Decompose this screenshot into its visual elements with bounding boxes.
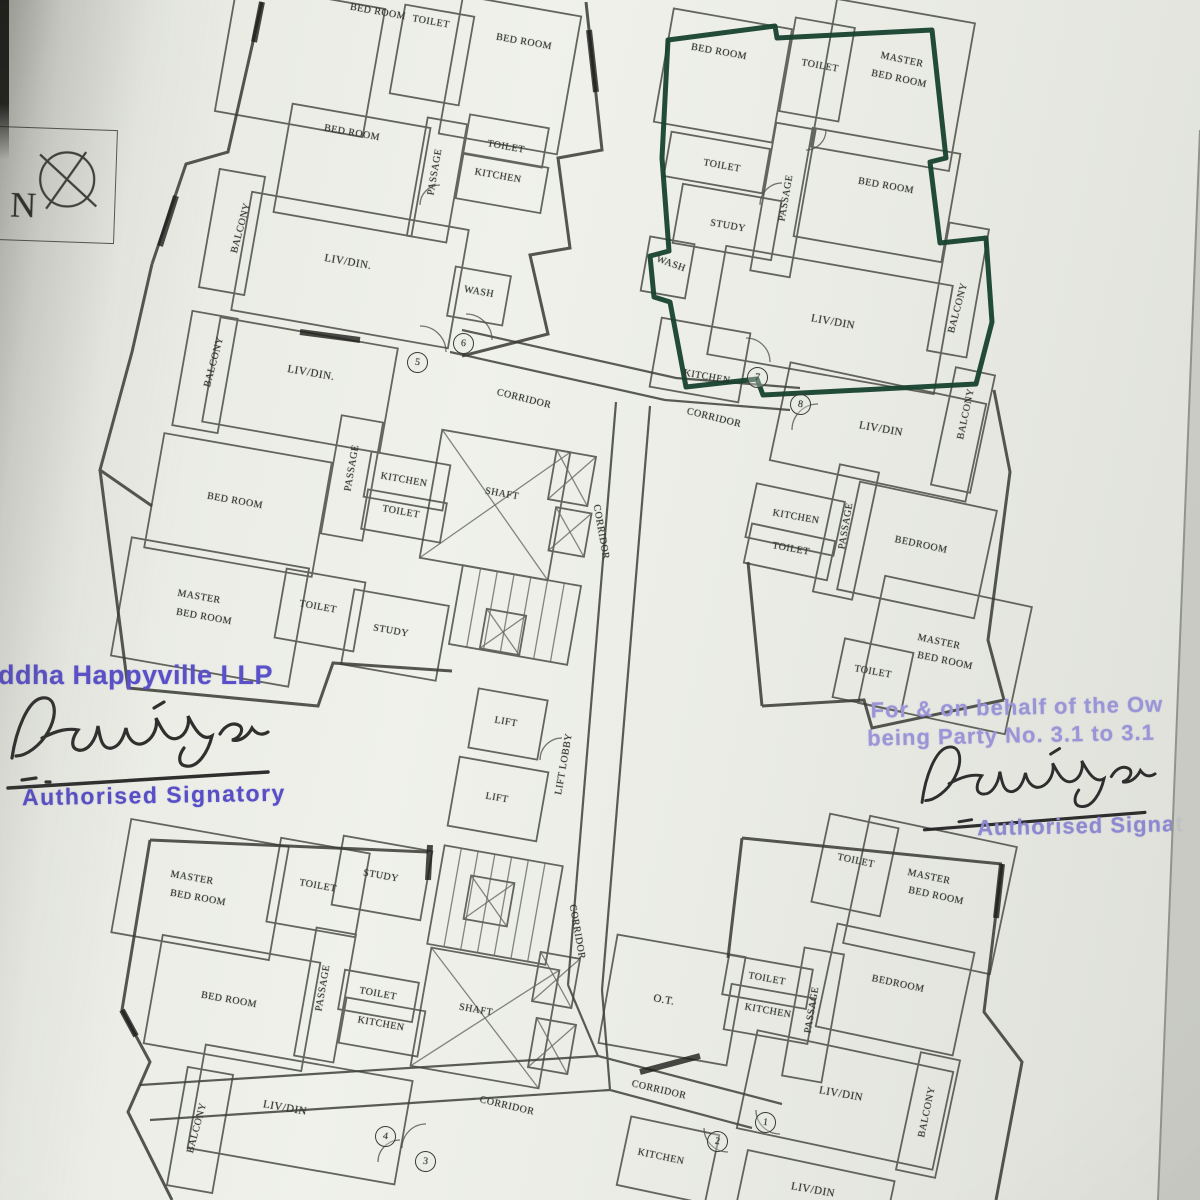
north-label: N — [10, 183, 37, 226]
highlighted-unit-outline — [650, 26, 992, 395]
page-left-edge — [0, 0, 9, 160]
stamp-right-line1: For & on behalf of the Ow — [870, 691, 1163, 723]
unit-top-left-walls — [199, 0, 581, 348]
stamp-left-title: Authorised Signatory — [22, 780, 286, 812]
stamp-right: For & on behalf of the Ow being Party No… — [862, 690, 1200, 858]
stamp-left: ddha Happyville LLP Authorised Signatory — [0, 660, 336, 820]
stamp-left-company: ddha Happyville LLP — [0, 660, 273, 691]
wall-fill-chunks — [122, 2, 1002, 1072]
floor-plan-drawing — [0, 0, 1200, 1200]
north-compass: N — [0, 126, 118, 244]
stamp-right-title: Authorised Signat — [977, 811, 1184, 841]
floor-plan-photo: BED ROOMTOILETBED ROOMBED ROOMPASSAGETOI… — [0, 0, 1200, 1200]
